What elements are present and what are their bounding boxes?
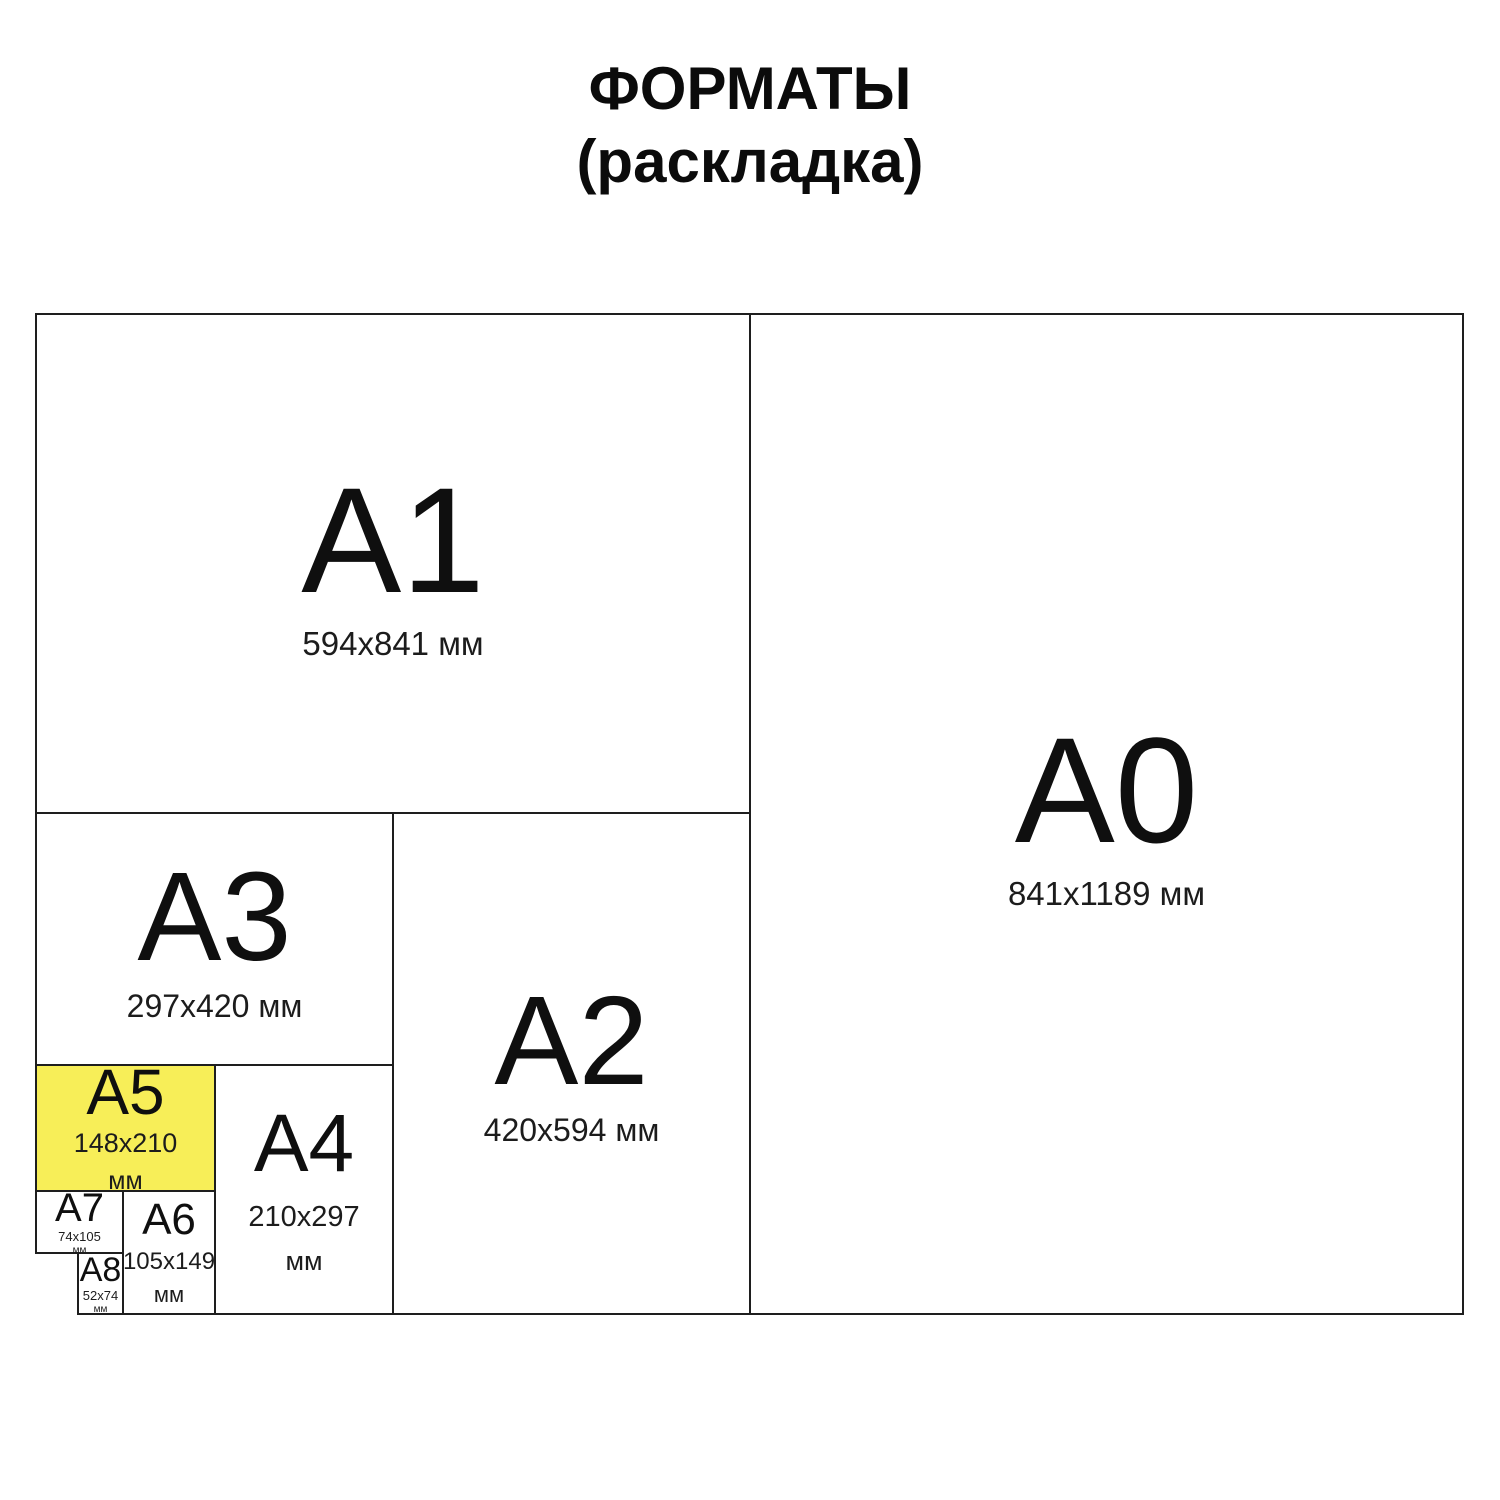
format-a7-name: A7 xyxy=(55,1188,104,1228)
format-box-a3: A3 297x420 мм xyxy=(35,812,394,1066)
format-a8-name: A8 xyxy=(80,1253,122,1287)
page-title-line2: (раскладка) xyxy=(0,125,1500,198)
format-a8-dimensions: 52x74 xyxy=(80,1288,122,1303)
format-a2-label-group: A2 420x594 мм xyxy=(484,978,660,1149)
format-a8-unit: мм xyxy=(80,1304,122,1315)
format-a5-label-group: A5 148x210 мм xyxy=(74,1060,178,1196)
format-a6-dimensions: 105x149 xyxy=(123,1248,215,1276)
format-a7-label-group: A7 74x105 мм xyxy=(55,1188,104,1256)
format-a3-label-group: A3 297x420 мм xyxy=(127,854,303,1025)
format-a7-dimensions: 74x105 xyxy=(55,1229,104,1244)
format-box-a4: A4 210x297 мм xyxy=(214,1064,394,1315)
format-a4-label-group: A4 210x297 мм xyxy=(248,1103,359,1277)
format-box-a0: A0 841x1189 мм xyxy=(749,313,1464,1315)
format-a6-label-group: A6 105x149 мм xyxy=(123,1198,215,1308)
format-a4-name: A4 xyxy=(248,1103,359,1185)
format-a5-name: A5 xyxy=(74,1060,178,1124)
format-box-a7: A7 74x105 мм xyxy=(35,1190,124,1254)
paper-formats-diagram: ФОРМАТЫ (раскладка) A1 594x841 мм A0 841… xyxy=(0,0,1500,1500)
format-box-a6: A6 105x149 мм xyxy=(122,1190,216,1315)
format-box-a2: A2 420x594 мм xyxy=(392,812,751,1315)
format-a0-label-group: A0 841x1189 мм xyxy=(1008,715,1205,913)
page-title: ФОРМАТЫ (раскладка) xyxy=(0,52,1500,198)
format-a4-unit: мм xyxy=(248,1246,359,1277)
format-a1-label-group: A1 594x841 мм xyxy=(301,465,484,663)
format-a3-dimensions: 297x420 мм xyxy=(127,988,303,1025)
format-a0-dimensions: 841x1189 мм xyxy=(1008,875,1205,913)
format-box-a5-highlighted: A5 148x210 мм xyxy=(35,1064,216,1192)
format-a3-name: A3 xyxy=(127,854,303,980)
page-title-line1: ФОРМАТЫ xyxy=(0,52,1500,125)
format-box-a1: A1 594x841 мм xyxy=(35,313,751,814)
format-a6-unit: мм xyxy=(123,1282,215,1308)
format-a8-label-group: A8 52x74 мм xyxy=(80,1253,122,1315)
format-a2-dimensions: 420x594 мм xyxy=(484,1112,660,1149)
format-a1-dimensions: 594x841 мм xyxy=(301,625,484,663)
format-a4-dimensions: 210x297 xyxy=(248,1201,359,1234)
format-box-a8: A8 52x74 мм xyxy=(77,1252,124,1315)
format-a0-name: A0 xyxy=(1008,715,1205,865)
format-a1-name: A1 xyxy=(301,465,484,615)
format-a5-dimensions: 148x210 xyxy=(74,1128,178,1159)
format-a2-name: A2 xyxy=(484,978,660,1104)
format-a6-name: A6 xyxy=(123,1198,215,1242)
